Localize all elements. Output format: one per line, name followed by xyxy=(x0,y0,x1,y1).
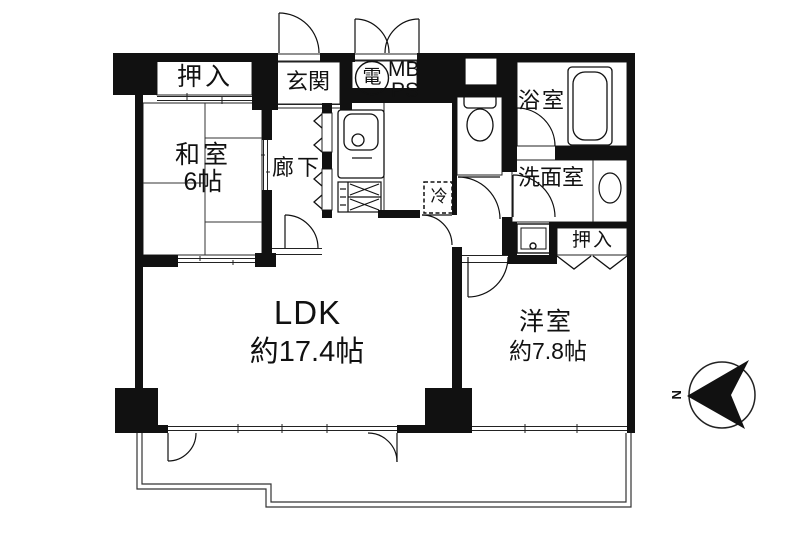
balcony-door-left-arc xyxy=(168,433,196,461)
toilet-icon xyxy=(464,94,496,141)
bathroom-door-arc xyxy=(517,108,555,146)
bathtub-icon xyxy=(568,67,612,145)
stove-icon xyxy=(338,182,381,212)
floorplan-page: 押入 玄関 電 MB PS 浴室 洗面室 冷 廊下 和室 6帖 押入 LDK 約… xyxy=(0,0,810,540)
japanese-room-size: 6帖 xyxy=(168,169,238,195)
closet-side-label: 押入 xyxy=(565,231,621,251)
toilet-door-arc xyxy=(458,177,500,219)
closet-top-label: 押入 xyxy=(158,64,252,90)
balcony-door-right-arc xyxy=(368,433,397,462)
kitchen-sink-icon xyxy=(338,110,384,178)
ldk-size: 約17.4帖 xyxy=(222,337,392,367)
entrance-door-arc xyxy=(279,13,319,53)
meter-box-doors-arc xyxy=(355,19,419,53)
meter-box-label: MB xyxy=(388,59,420,81)
bathroom-label: 浴室 xyxy=(514,89,570,112)
hall-dk-door-arc xyxy=(422,215,452,245)
ldk-label: LDK xyxy=(255,296,360,331)
refrigerator-label: 冷 xyxy=(427,188,451,206)
pipe-shaft-label: PS xyxy=(391,80,423,102)
western-room-label: 洋室 xyxy=(514,309,578,335)
washing-machine-icon xyxy=(517,224,550,253)
entrance-label: 玄関 xyxy=(276,70,340,93)
corridor-label: 廊下 xyxy=(270,156,324,179)
compass-icon xyxy=(687,360,755,429)
western-room-size: 約7.8帖 xyxy=(500,339,596,363)
electric-meter-label: 電 xyxy=(356,68,388,88)
japanese-room-label: 和室 xyxy=(168,142,238,168)
corridor-ldk-door-arc xyxy=(285,215,318,248)
toilet-window xyxy=(465,58,497,85)
washroom-label: 洗面室 xyxy=(512,166,590,189)
balcony-outline xyxy=(137,433,631,507)
compass-north-label: N xyxy=(670,386,684,404)
wash-basin-icon xyxy=(599,173,621,203)
